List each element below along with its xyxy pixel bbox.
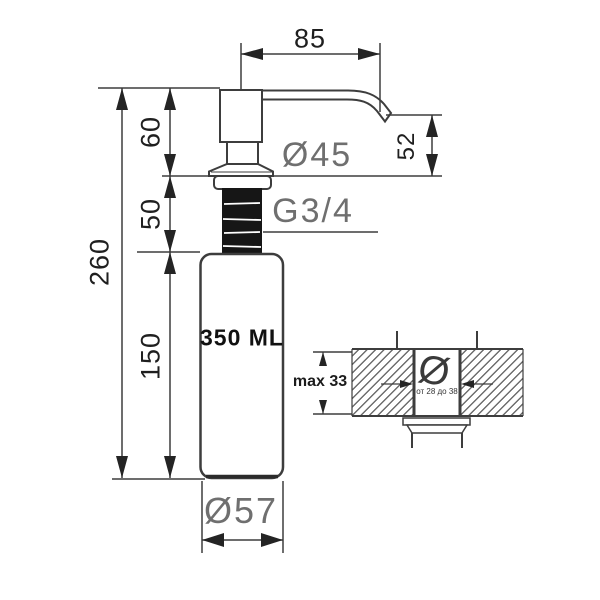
drawing-linework [0, 0, 600, 600]
arrow-150-down [164, 456, 176, 478]
arrow-85-left [241, 48, 263, 60]
detail-nut-body [407, 425, 467, 433]
arrow-50-up [164, 176, 176, 198]
arrow-52-down [426, 154, 438, 176]
dim-label-head-height: 60 [138, 116, 165, 148]
dim-label-spout-drop: 52 [395, 132, 419, 161]
arrow-52-up [426, 115, 438, 137]
arrow-60-down [164, 154, 176, 176]
arrow-85-right [358, 48, 380, 60]
arrow-150-up [164, 252, 176, 274]
max33-arrow-down [319, 400, 327, 414]
arrow-57-left [202, 533, 224, 547]
label-hole-diameter-range: от 28 до 38 [416, 388, 458, 396]
spout-shape [262, 91, 391, 122]
locknut [214, 176, 271, 189]
detail-nut-washer [403, 418, 470, 425]
arrow-50-down [164, 230, 176, 252]
dim-label-thread-length: 50 [138, 198, 165, 230]
label-thread-size: G3/4 [272, 194, 354, 228]
max33-arrow-up [319, 352, 327, 366]
label-bottle-diameter: Ø57 [204, 493, 278, 529]
arrow-260-down [116, 456, 128, 478]
hole-arrow-left [400, 380, 413, 388]
threaded-shank [222, 188, 262, 254]
bottle [201, 254, 284, 478]
dim-label-bottle-height: 150 [138, 332, 165, 380]
arrow-57-right [261, 533, 283, 547]
label-counter-max-thickness: max 33 [293, 374, 347, 390]
flange [209, 164, 273, 176]
arrow-60-up [164, 88, 176, 110]
pump-head [220, 90, 262, 142]
label-bottle-capacity: 350 ML [200, 327, 284, 350]
arrow-260-up [116, 88, 128, 110]
dim-label-spout-length: 85 [294, 26, 326, 53]
dim-label-total-height: 260 [87, 238, 114, 286]
pump-neck [227, 142, 258, 165]
technical-drawing: 85 60 50 260 150 52 Ø45 G3/4 350 ML Ø57 … [0, 0, 600, 600]
label-flange-diameter: Ø45 [282, 138, 352, 172]
hole-arrow-right [461, 380, 474, 388]
